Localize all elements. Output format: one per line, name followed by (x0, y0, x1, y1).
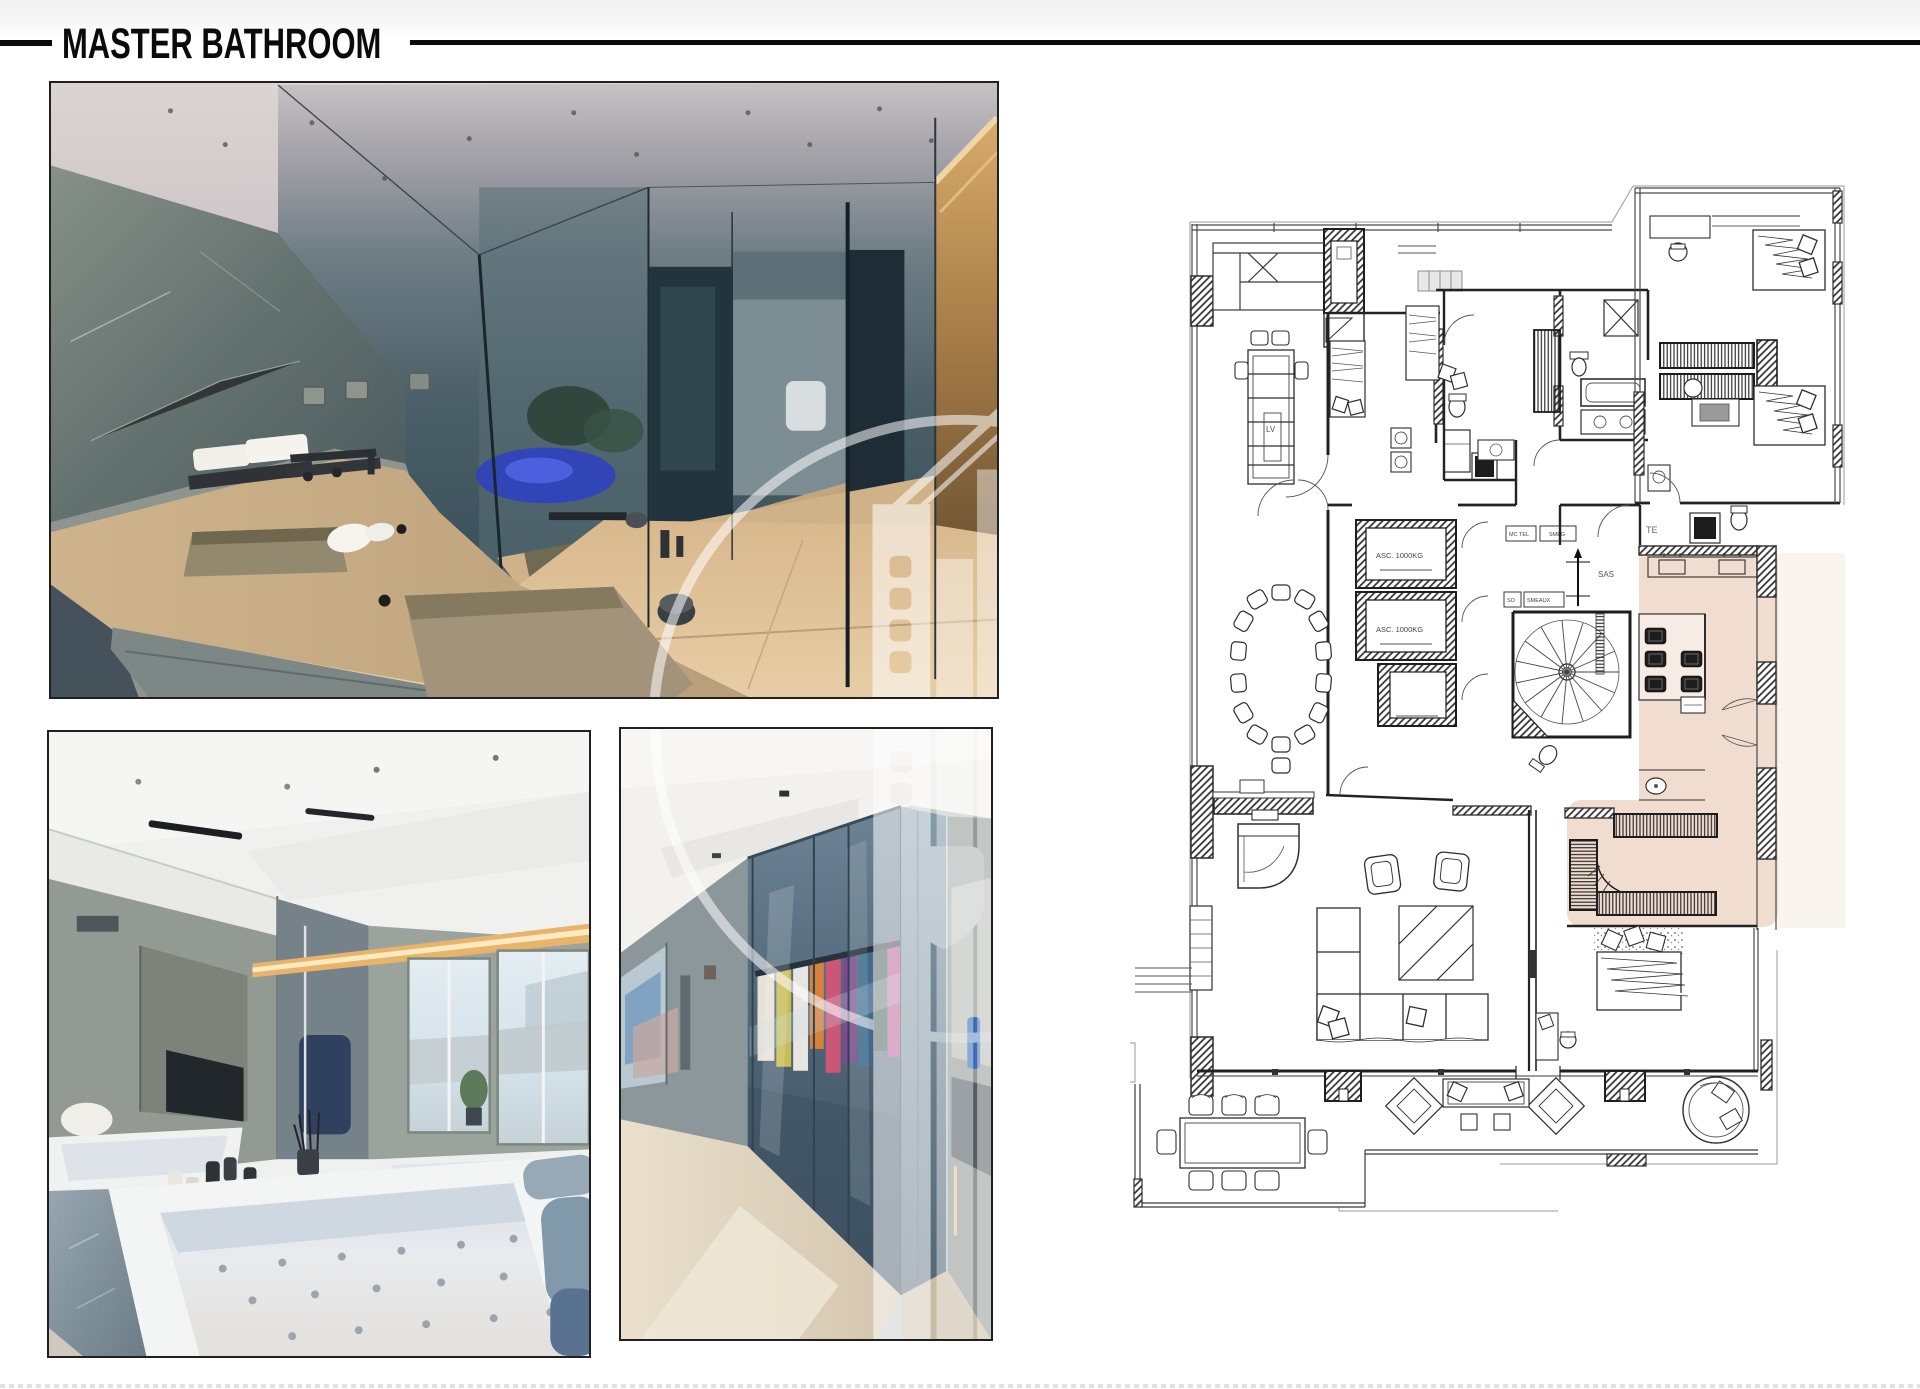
svg-text:TE: TE (1646, 525, 1658, 535)
svg-text:ASC. 1000KG: ASC. 1000KG (1376, 625, 1423, 634)
svg-text:MC TEL: MC TEL (1509, 532, 1529, 538)
svg-text:ASC. 1000KG: ASC. 1000KG (1376, 551, 1423, 560)
svg-text:SMEG: SMEG (1549, 532, 1565, 538)
svg-text:LV: LV (1266, 425, 1276, 434)
svg-text:SMEAUX: SMEAUX (1527, 598, 1551, 604)
svg-text:SAS: SAS (1598, 570, 1614, 579)
svg-text:SO: SO (1507, 598, 1516, 604)
